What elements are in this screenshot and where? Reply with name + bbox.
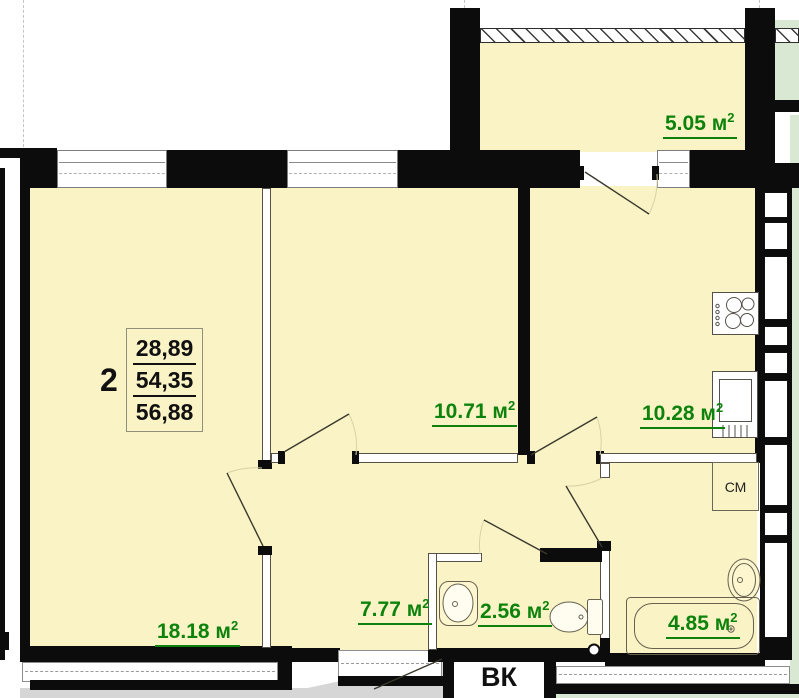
stamp-areas-box: 28,89 54,35 56,88: [126, 328, 204, 432]
floor-plan: ВК: [0, 0, 799, 698]
door-swing-arcs: [227, 174, 657, 554]
pipe-riser-icon: [589, 645, 600, 656]
area-label-living-room: 18.18 м2: [155, 618, 240, 647]
washing-machine-label: СМ: [725, 479, 747, 495]
area-label-bedroom: 10.71 м2: [432, 398, 517, 427]
toilet-icon: [550, 600, 603, 635]
rooms-count: 2: [100, 362, 118, 399]
wc-sink-icon: [440, 582, 478, 626]
apartment-stamp: 2 28,89 54,35 56,88: [100, 328, 203, 432]
washing-machine-box: СМ: [712, 462, 759, 511]
stove-icon: [713, 293, 759, 335]
bath-sink-icon: [728, 559, 760, 601]
area-label-balcony: 5.05 м2: [663, 110, 737, 139]
total-area-value: 56,88: [133, 397, 197, 427]
living-area-value: 28,89: [133, 333, 197, 365]
apartment-area-value: 54,35: [133, 365, 197, 397]
area-label-hallway: 7.77 м2: [358, 596, 432, 625]
area-label-kitchen: 10.28 м2: [640, 400, 725, 429]
area-label-bathroom: 4.85 м2: [666, 610, 740, 639]
area-label-wc: 2.56 м2: [478, 598, 552, 627]
